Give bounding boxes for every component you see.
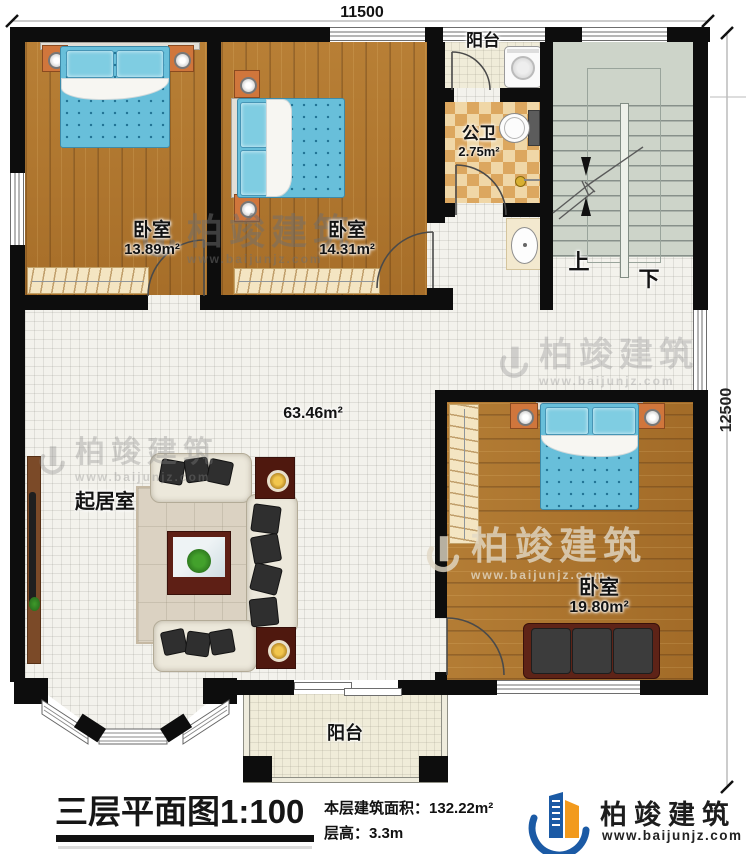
bed-blanket-fold: [266, 99, 292, 197]
floor-area-value: 132.22m²: [429, 800, 493, 817]
dim-top-label: 11500: [312, 5, 412, 21]
bedroom2-label: 卧室: [287, 221, 407, 240]
bedroom3-sofa-cushion: [531, 628, 571, 674]
lamp-icon: [268, 640, 290, 662]
nightstand: [234, 194, 260, 222]
brand-logo-icon: [522, 788, 596, 854]
sofa-cushion: [250, 533, 282, 565]
lamp-icon: [174, 52, 191, 69]
plant-icon: [187, 549, 211, 573]
lamp-icon: [517, 409, 534, 426]
bedroom1-wardrobe: [27, 267, 149, 294]
balcony-post: [243, 756, 272, 782]
washing-machine: [504, 46, 542, 88]
floor-area-text: 本层建筑面积：132.22m²: [324, 801, 539, 816]
wall-left: [10, 27, 25, 173]
floor-plan: 柏竣建筑 www.baijunjz.com 柏竣建筑 www.baijunjz.…: [0, 0, 750, 860]
bedroom2-wardrobe: [234, 268, 380, 294]
sofa-cushion: [250, 503, 282, 535]
bed-pillow: [66, 50, 114, 78]
plan-title: 三层平面图1:100: [55, 795, 325, 828]
bed-pillow: [116, 50, 164, 78]
title-underline: [56, 835, 314, 842]
faucet-icon: [515, 176, 526, 187]
stairwell-window: [582, 27, 667, 42]
lamp-icon: [267, 470, 289, 492]
bathroom-label: 公卫: [437, 125, 521, 142]
wall-bathroom-bottom: [503, 203, 540, 217]
sofa-cushion: [249, 597, 280, 628]
sofa-cushion: [208, 628, 236, 656]
living-room-label: 起居室: [45, 492, 165, 512]
bathroom-area: 2.75m²: [437, 145, 521, 158]
brand-url: www.baijunjz.com: [602, 828, 750, 843]
sofa-cushion: [206, 458, 234, 486]
balcony-bottom-label: 阳台: [305, 724, 385, 742]
bedroom3-label: 卧室: [537, 578, 661, 598]
nightstand: [168, 45, 194, 72]
bed-pillow: [545, 407, 589, 435]
wall-bathroom-top: [443, 88, 454, 102]
washer-drum-icon: [511, 56, 535, 80]
title-underline-shadow: [58, 846, 312, 849]
bedroom2-area: 14.31m²: [287, 242, 407, 257]
wall-bottom: [640, 680, 695, 695]
wall-bedroom-divider: [207, 42, 221, 295]
bedroom3-window: [497, 680, 640, 695]
wall-bedroom3-top: [435, 390, 693, 402]
nightstand: [510, 403, 538, 429]
wall-top: [10, 27, 330, 42]
lamp-icon: [240, 201, 257, 218]
bay-corner-post: [14, 678, 48, 704]
dim-right-label: 12500: [719, 380, 735, 440]
brand-logo: 柏竣建筑 www.baijunjz.com: [520, 786, 748, 856]
bay-corner-post: [203, 678, 237, 704]
bedroom1-label: 卧室: [92, 221, 212, 240]
wall-bathroom-top: [500, 88, 540, 102]
bed-pillow: [592, 407, 636, 435]
end-table: [256, 627, 296, 669]
wall-bottom: [447, 680, 497, 695]
brand-name: 柏竣建筑: [600, 793, 748, 832]
bedroom3-area: 19.80m²: [537, 600, 661, 616]
wall-right: [693, 390, 708, 695]
wall-bottom: [398, 680, 447, 695]
lamp-icon: [644, 409, 661, 426]
faucet-pipe: [524, 179, 540, 181]
wall-bathroom-bottom: [443, 203, 455, 217]
floor-height-text: 层高：3.3m: [324, 826, 539, 841]
sliding-door: [344, 688, 402, 696]
bedroom3-sofa-cushion: [572, 628, 612, 674]
living-room-area: 63.46m²: [258, 406, 368, 422]
stairs-down-label: 下: [636, 269, 662, 290]
stairs-rail: [620, 103, 629, 278]
tv-icon: [29, 492, 36, 604]
wall-stairwell-left: [540, 27, 553, 310]
sofa-cushion: [184, 630, 211, 657]
bed-pillow: [240, 150, 268, 196]
bedroom1-window: [10, 173, 25, 245]
floor-height-value: 3.3m: [369, 825, 403, 842]
wall-right: [693, 27, 708, 310]
wall-bedrooms-bottom: [10, 295, 148, 310]
lamp-icon: [240, 77, 257, 94]
balcony-post: [419, 756, 448, 782]
stairs-up-label: 上: [566, 252, 592, 273]
sofa-cushion: [158, 458, 186, 486]
bedroom1-area: 13.89m²: [92, 242, 212, 257]
balcony-top-label: 阳台: [435, 32, 531, 49]
bed-pillow: [240, 102, 268, 148]
wall-left: [10, 245, 25, 682]
wall-bottom: [230, 680, 294, 695]
washer-panel: [507, 49, 539, 53]
bedroom3-wardrobe: [449, 404, 479, 544]
plant-icon: [29, 597, 40, 611]
nightstand: [637, 403, 665, 429]
end-table: [255, 457, 295, 499]
floor-area-label: 本层建筑面积：: [324, 800, 429, 817]
basin-drain: [523, 243, 527, 247]
bedroom3-sofa-cushion: [613, 628, 653, 674]
wall-bedrooms-bottom: [200, 295, 440, 310]
bedroom2-window: [330, 27, 425, 42]
living-room-window: [693, 310, 708, 390]
wall-bedroom3-left: [435, 390, 447, 618]
coffee-table: [167, 531, 231, 595]
floor-height-label: 层高：: [324, 825, 369, 842]
balcony-rail: [243, 777, 448, 783]
nightstand: [234, 70, 260, 98]
